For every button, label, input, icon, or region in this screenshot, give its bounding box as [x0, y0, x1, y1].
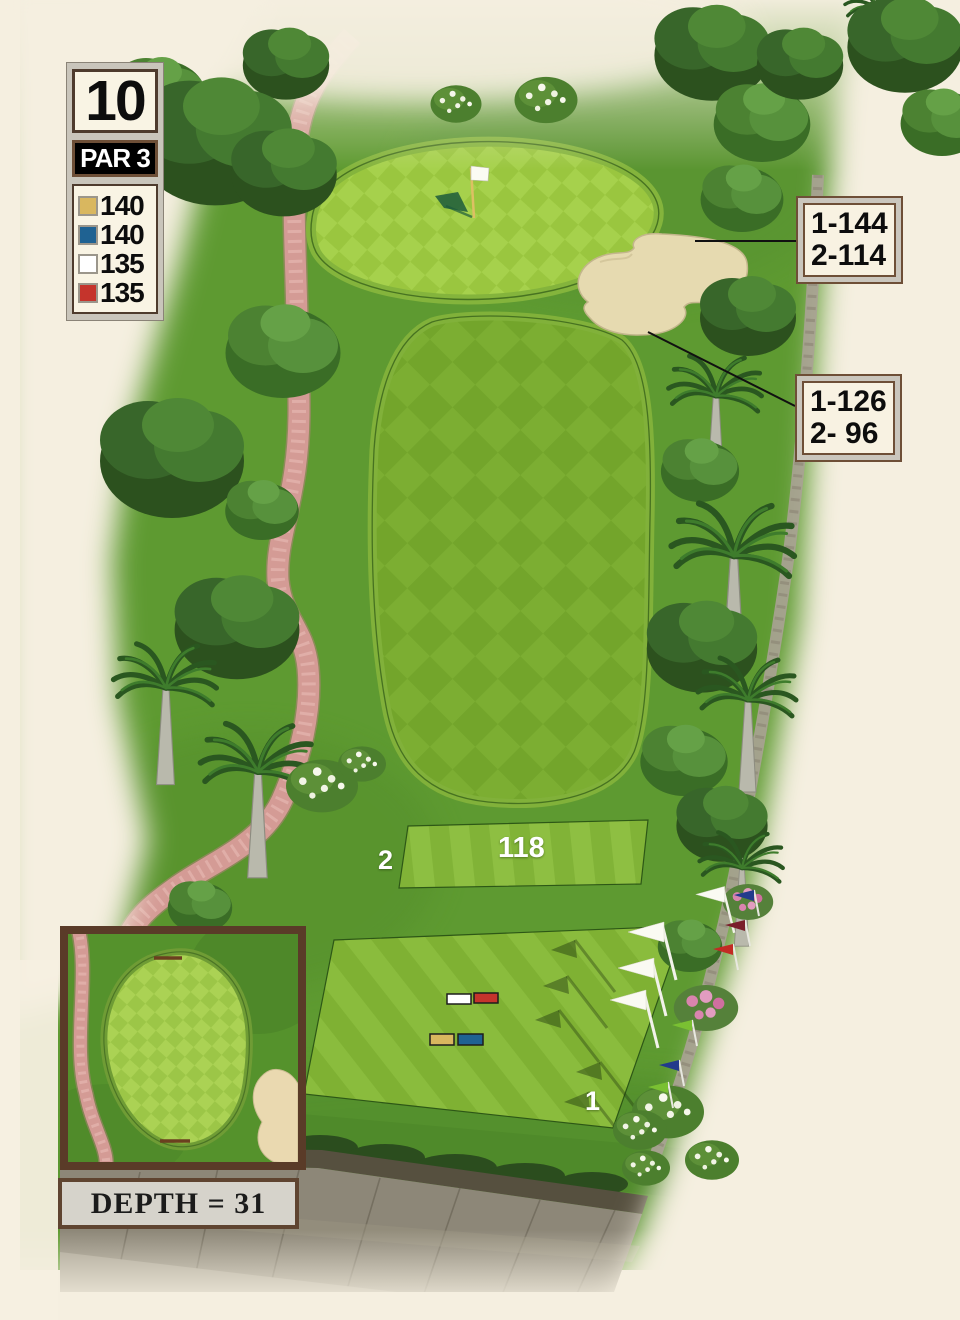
yardage-line: 2-114: [811, 240, 888, 272]
hole-number-box: 10: [72, 69, 158, 133]
tee-legend-row-white: 135: [78, 251, 153, 277]
yardage-callout-inner: 1-144 2-114: [803, 203, 896, 277]
tee2-distance-label: 118: [498, 832, 545, 865]
par-box: PAR 3: [72, 140, 158, 177]
par-label: PAR 3: [75, 143, 155, 174]
gold-tee-marker: [430, 1034, 454, 1045]
tee1-number-label: 1: [585, 1086, 600, 1117]
hole-number: 10: [75, 73, 155, 129]
green-depth-box: DEPTH = 31: [58, 1178, 299, 1229]
green-detail-map: [68, 934, 298, 1162]
blue-tee-yardage: 140: [100, 222, 144, 248]
green-depth-text: DEPTH = 31: [91, 1187, 266, 1221]
white-tee-yardage: 135: [100, 251, 144, 277]
tee-yardage-legend: 140 140 135 135: [72, 184, 158, 314]
yardage-callout-bunker: 1-144 2-114: [796, 196, 903, 284]
fairway: [372, 316, 650, 803]
tee-legend-row-gold: 140: [78, 193, 153, 219]
yardage-callout-inner: 1-126 2- 96: [802, 381, 895, 455]
blue-tee-swatch: [78, 225, 98, 245]
tee-legend-row-red: 135: [78, 280, 153, 306]
hole-info-panel: 10 PAR 3 140 140 135 135: [66, 62, 164, 321]
gold-tee-swatch: [78, 196, 98, 216]
white-tee-swatch: [78, 254, 98, 274]
tee-legend-row-blue: 140: [78, 222, 153, 248]
red-tee-yardage: 135: [100, 280, 144, 306]
tee2-number-label: 2: [378, 845, 393, 876]
yardage-line: 2- 96: [810, 418, 887, 450]
yardage-callout-treeline: 1-126 2- 96: [795, 374, 902, 462]
white-tee-marker: [447, 994, 471, 1004]
red-tee-marker: [474, 993, 498, 1003]
blue-tee-marker: [458, 1034, 483, 1045]
inset-bunker: [253, 1069, 298, 1162]
red-tee-swatch: [78, 283, 98, 303]
yardage-line: 1-126: [810, 386, 887, 418]
gold-tee-yardage: 140: [100, 193, 144, 219]
yardage-line: 1-144: [811, 208, 888, 240]
golf-hole-card: 10 PAR 3 140 140 135 135: [0, 0, 960, 1320]
green-detail-inset: [60, 926, 306, 1170]
